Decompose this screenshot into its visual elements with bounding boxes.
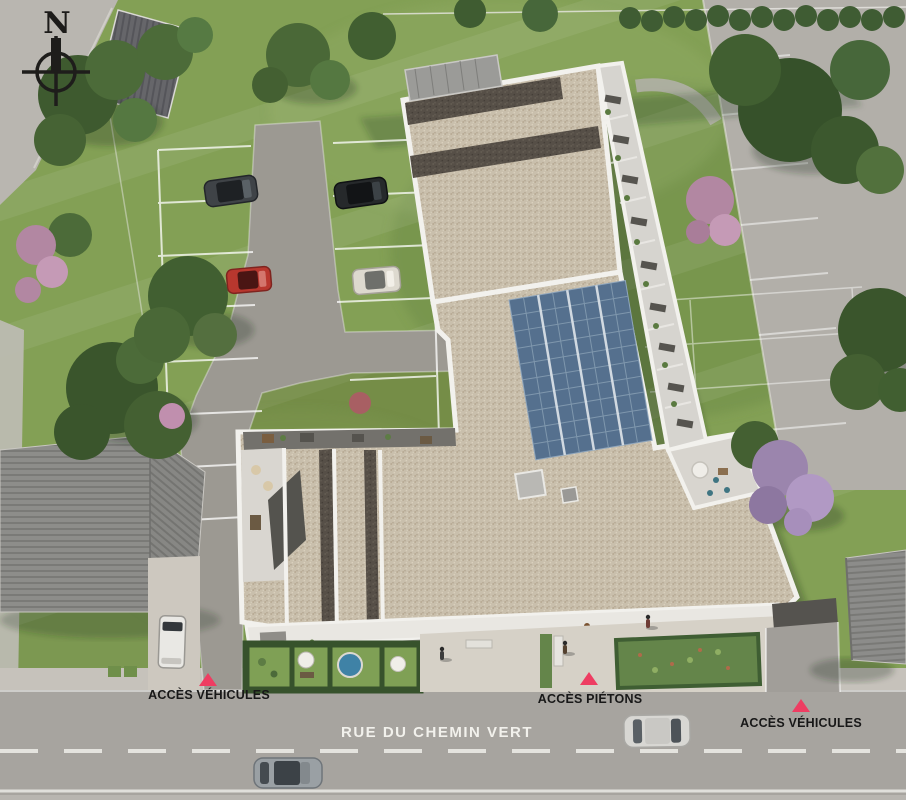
parking-car-white bbox=[352, 266, 401, 295]
street-car-parked bbox=[624, 714, 691, 747]
tree bbox=[348, 12, 396, 60]
garden-table bbox=[298, 652, 314, 668]
compass-north-needle bbox=[51, 38, 61, 72]
access-pedestrians-label: ACCÈS PIÉTONS bbox=[538, 692, 642, 706]
aerial-site-plan bbox=[0, 0, 906, 800]
white-van bbox=[158, 616, 186, 669]
bush-red bbox=[349, 392, 371, 414]
access-vehicles-left-label: ACCÈS VÉHICULES bbox=[148, 688, 270, 702]
access-triangle-pedestrians bbox=[579, 671, 599, 686]
street-car-driving bbox=[254, 758, 322, 788]
parking-car-red bbox=[226, 266, 272, 294]
street-name-label: RUE DU CHEMIN VERT bbox=[341, 724, 533, 741]
access-triangle-vehicles-left bbox=[198, 672, 218, 687]
access-vehicles-right-label: ACCÈS VÉHICULES bbox=[740, 716, 862, 730]
garden-parasol bbox=[391, 657, 406, 672]
private-gardens bbox=[246, 644, 420, 690]
tree-pink-small bbox=[159, 403, 185, 429]
access-triangle-vehicles-right bbox=[791, 698, 811, 713]
compass-north-label: N bbox=[43, 6, 70, 41]
round-pool bbox=[338, 653, 362, 677]
site-plan-rendering: N ACCÈS VÉHICULES ACCÈS PIÉTONS ACCÈS VÉ… bbox=[0, 0, 906, 800]
